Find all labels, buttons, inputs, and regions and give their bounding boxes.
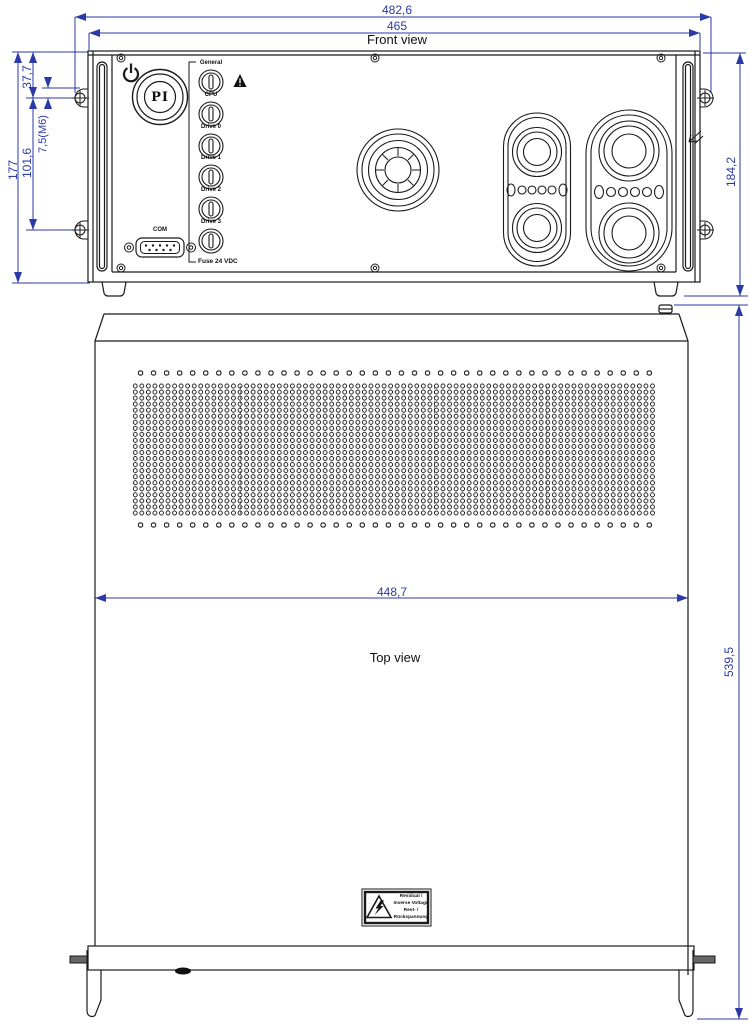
- ventilation-grille: [132, 383, 656, 516]
- fan: [357, 129, 439, 211]
- led-label-cpu: CPU: [181, 92, 241, 98]
- ventilation-grille-row: [134, 521, 656, 529]
- dim-mounting-width: 465: [330, 19, 464, 33]
- hazard-line-3: Rest- /: [392, 907, 430, 914]
- hazard-line-4: Rückspannung: [392, 914, 430, 921]
- hazard-line-2: Inverse Voltage: [392, 900, 430, 907]
- hazard-line-1: Residual /: [392, 893, 430, 900]
- com-label: COM: [145, 227, 175, 233]
- hazard-label-text: Residual / Inverse Voltage Rest- / Rücks…: [392, 893, 430, 921]
- dim-hole-thread: 7,5(M6): [37, 99, 49, 169]
- warning-triangle-icon: [234, 74, 247, 87]
- com-port: [125, 238, 196, 257]
- pi-logo: PI: [140, 90, 180, 105]
- dim-overall-width: 482,6: [330, 3, 464, 17]
- led-label-drive0: Drive 0: [181, 124, 241, 130]
- dim-total-height: 184,2: [724, 142, 738, 202]
- ventilation-grille-row: [134, 369, 656, 377]
- dim-panel-height: 177: [6, 140, 20, 200]
- dim-top-width: 448,7: [325, 585, 459, 599]
- connector-module-left: [504, 113, 571, 266]
- front-view-title: Front view: [330, 32, 464, 47]
- led-label-drive1: Drive 1: [181, 155, 241, 161]
- fuse-label: Fuse 24 VDC: [198, 258, 258, 265]
- technical-drawing: 482,6 465 Front view 177 37,7 101,6 7,5(…: [0, 0, 750, 1026]
- dim-hole-spacing: 101,6: [20, 133, 34, 193]
- dim-top-depth: 539,5: [722, 632, 736, 692]
- dim-hole-top-offset: 37,7: [20, 47, 34, 107]
- led-label-drive3: Drive 3: [181, 219, 241, 225]
- led-label-general: General: [181, 60, 241, 66]
- led-label-drive2: Drive 2: [181, 187, 241, 193]
- power-icon: [124, 64, 138, 82]
- top-view-title: Top view: [328, 650, 462, 665]
- connector-module-right: [586, 110, 672, 271]
